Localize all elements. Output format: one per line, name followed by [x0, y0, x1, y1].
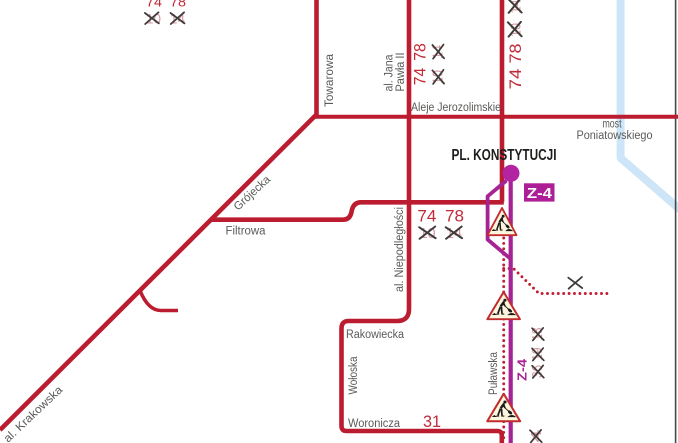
svg-text:78: 78: [506, 44, 525, 64]
svg-text:Woronicza: Woronicza: [348, 418, 401, 430]
svg-text:Poniatowskiego: Poniatowskiego: [577, 130, 653, 142]
svg-text:PL. KONSTYTUCJI: PL. KONSTYTUCJI: [452, 147, 557, 164]
svg-text:Z-4: Z-4: [527, 185, 553, 202]
svg-text:78: 78: [411, 43, 430, 61]
svg-text:al. Jana: al. Jana: [384, 54, 396, 92]
svg-text:74: 74: [411, 68, 430, 86]
svg-text:Filtrowa: Filtrowa: [226, 226, 267, 238]
svg-text:74: 74: [146, 0, 162, 10]
svg-text:Puławska: Puławska: [488, 351, 500, 395]
svg-text:78: 78: [170, 0, 186, 10]
svg-text:74: 74: [417, 207, 436, 226]
svg-text:78: 78: [445, 207, 464, 226]
svg-text:Pawła II: Pawła II: [395, 53, 407, 92]
svg-text:al. Niepodległości: al. Niepodległości: [394, 207, 406, 292]
svg-text:Towarowa: Towarowa: [324, 53, 336, 107]
svg-text:Z-4: Z-4: [516, 359, 530, 381]
svg-text:most: most: [603, 119, 623, 131]
svg-text:Wołoska: Wołoska: [348, 356, 360, 395]
svg-text:31: 31: [423, 412, 441, 431]
svg-text:Rakowiecka: Rakowiecka: [346, 329, 405, 341]
svg-text:Aleje Jerozolimskie: Aleje Jerozolimskie: [411, 102, 501, 114]
svg-text:74: 74: [506, 69, 525, 90]
